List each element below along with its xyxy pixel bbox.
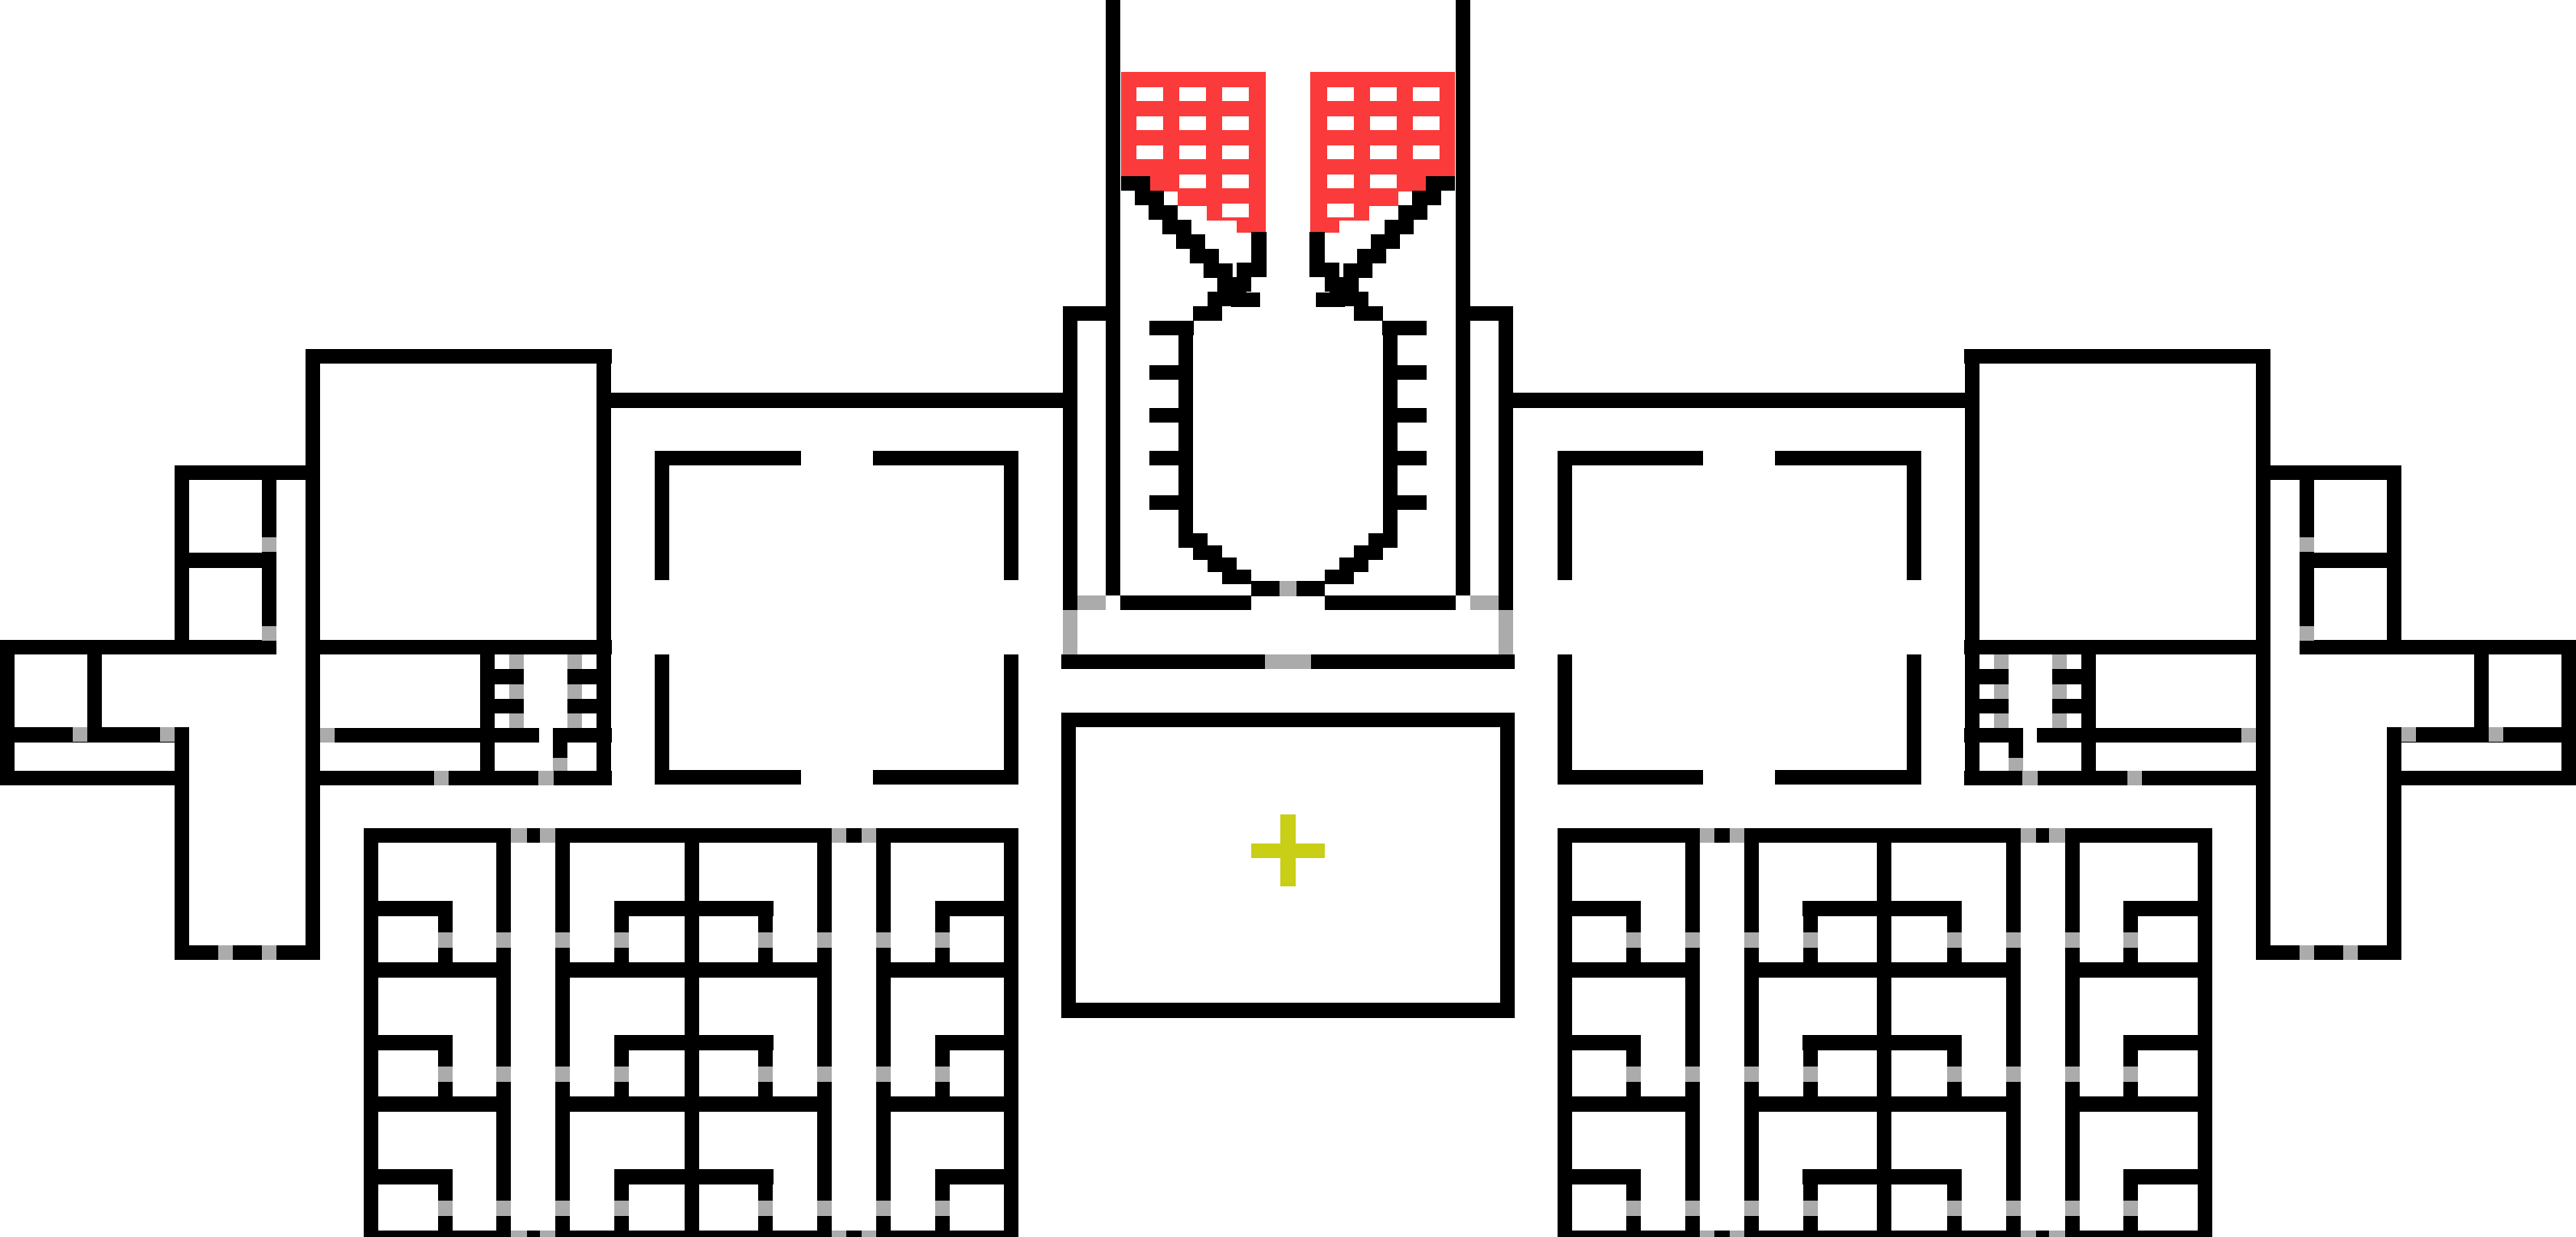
door-opening: [434, 771, 449, 785]
wall: [306, 349, 612, 364]
wall: [1891, 901, 1962, 916]
door-opening: [1685, 1201, 1700, 1216]
door-opening: [1685, 932, 1700, 948]
wall: [2037, 728, 2241, 743]
wall: [1572, 1035, 1641, 1050]
wall: [2300, 480, 2314, 537]
hatch-window: [1179, 87, 1206, 101]
wall: [2474, 654, 2489, 727]
door-opening: [2052, 684, 2067, 699]
door-opening: [555, 932, 570, 948]
hatch-window: [1136, 87, 1163, 101]
staircase-step: [1193, 306, 1222, 321]
wall: [1382, 321, 1427, 335]
wall: [1383, 335, 1398, 539]
door-opening: [832, 1231, 846, 1237]
staircase-step: [1135, 191, 1164, 205]
wall: [1063, 306, 1106, 321]
wall: [614, 901, 685, 916]
door-opening: [1063, 610, 1077, 654]
door-opening: [2300, 626, 2314, 641]
door-opening: [614, 932, 629, 948]
door-opening: [758, 1201, 773, 1216]
wall: [1891, 1096, 2006, 1112]
staircase-step: [1237, 263, 1266, 277]
wall: [1499, 306, 1513, 610]
door-opening: [817, 1201, 832, 1216]
wall: [555, 843, 570, 1231]
wall: [614, 1035, 685, 1050]
wall: [306, 640, 612, 654]
door-opening: [1744, 1067, 1759, 1082]
wall: [1004, 654, 1018, 770]
wall: [364, 828, 1018, 843]
door-opening: [862, 1231, 876, 1237]
door-opening: [2021, 1231, 2036, 1237]
door-opening: [509, 684, 524, 699]
wall: [175, 480, 189, 654]
door-opening: [2021, 828, 2036, 843]
wall: [189, 553, 276, 568]
wall: [1120, 595, 1251, 610]
wall: [2256, 945, 2401, 960]
wall: [1398, 495, 1427, 510]
door-opening: [2065, 1067, 2080, 1082]
medical-cross-bar: [1251, 844, 1325, 858]
door-opening: [935, 1067, 950, 1082]
staircase-step: [1149, 205, 1178, 220]
door-opening: [1282, 581, 1296, 596]
door-opening: [1803, 932, 1818, 948]
door-opening: [511, 1231, 527, 1237]
wall: [1907, 654, 1921, 770]
wall: [685, 843, 699, 1231]
staircase-step: [1325, 570, 1354, 584]
wall: [1149, 408, 1178, 423]
wall: [1891, 1169, 1962, 1184]
door-opening: [511, 828, 527, 843]
wall: [611, 393, 1063, 408]
wall: [1004, 828, 1018, 1237]
door-opening: [758, 1067, 773, 1082]
door-opening: [876, 1201, 891, 1216]
door-opening: [832, 828, 846, 843]
wall: [2123, 1169, 2198, 1184]
wall: [1513, 393, 1965, 408]
staircase-step: [1222, 277, 1251, 292]
door-opening: [935, 932, 950, 948]
door-opening: [935, 1201, 950, 1216]
door-opening: [218, 945, 233, 960]
wall: [699, 1035, 774, 1050]
wall: [2006, 843, 2021, 1231]
wall: [2123, 1035, 2198, 1050]
wall: [0, 640, 276, 654]
wall: [699, 1169, 774, 1184]
wall: [1558, 828, 2212, 843]
wall: [335, 728, 539, 743]
floor-plan-canvas: [0, 0, 2576, 1237]
door-opening: [553, 758, 567, 771]
staircase-step: [1426, 176, 1455, 191]
door-opening: [2065, 1201, 2080, 1216]
door-opening: [509, 654, 524, 669]
wall: [0, 771, 189, 785]
door-opening: [1994, 684, 2009, 699]
wall: [2256, 785, 2270, 960]
door-opening: [2065, 932, 2080, 948]
wall: [614, 1169, 685, 1184]
wall: [1775, 451, 1921, 465]
wall: [1398, 451, 1427, 465]
door-opening: [1803, 1067, 1818, 1082]
door-opening: [862, 828, 876, 843]
door-opening: [262, 945, 276, 960]
door-opening: [555, 1201, 570, 1216]
wall: [2081, 654, 2096, 785]
staircase-step: [1357, 249, 1386, 263]
door-opening: [1499, 610, 1513, 654]
door-opening: [1744, 1201, 1759, 1216]
wall: [1964, 771, 2256, 785]
wall: [1325, 595, 1456, 610]
wall: [1572, 962, 1685, 978]
hatch-window: [1413, 145, 1440, 159]
door-opening: [817, 932, 832, 948]
wall: [378, 1035, 453, 1050]
wall: [1178, 335, 1193, 539]
wall: [1877, 843, 1891, 1231]
hatch-window: [1413, 87, 1440, 101]
wall: [175, 465, 320, 480]
wall: [0, 654, 15, 785]
wall: [1558, 465, 1572, 580]
wall: [1558, 451, 1703, 465]
staircase-step: [1204, 263, 1233, 278]
wall: [306, 349, 320, 785]
restricted-block-step: [1310, 191, 1398, 206]
wall: [876, 843, 891, 1231]
wall: [378, 962, 496, 978]
door-opening: [2006, 1201, 2021, 1216]
wall: [1964, 640, 2270, 654]
wall: [1802, 1169, 1877, 1184]
wall: [2387, 771, 2576, 785]
wall: [553, 743, 567, 758]
door-opening: [509, 713, 524, 728]
wall: [378, 1169, 453, 1184]
door-opening: [614, 1067, 629, 1082]
wall: [1149, 365, 1178, 380]
wall: [1558, 828, 1572, 1237]
hatch-window: [1370, 116, 1397, 130]
door-opening: [320, 728, 335, 743]
staircase-step: [1222, 570, 1251, 584]
door-opening: [262, 537, 276, 552]
wall: [655, 451, 801, 465]
door-opening: [73, 727, 87, 742]
door-opening: [1947, 1201, 1962, 1216]
staircase-step: [1354, 306, 1383, 321]
door-opening: [2052, 654, 2067, 669]
wall: [1964, 349, 2270, 364]
wall: [1572, 1096, 1685, 1112]
hatch-window: [1179, 175, 1206, 188]
restricted-block-step: [1237, 221, 1266, 233]
door-opening: [1700, 1231, 1714, 1237]
staircase-step: [1343, 263, 1372, 278]
wall: [175, 945, 320, 960]
hatch-window: [1136, 145, 1163, 159]
wall: [655, 654, 669, 770]
staircase-step: [1162, 220, 1191, 234]
staircase-step: [1339, 292, 1368, 306]
wall: [378, 1096, 496, 1112]
door-opening: [2022, 771, 2038, 785]
wall: [1907, 465, 1921, 580]
wall: [1149, 451, 1178, 465]
door-opening: [876, 932, 891, 948]
wall: [655, 465, 669, 580]
wall: [567, 699, 597, 713]
wall: [655, 770, 801, 785]
wall: [87, 654, 102, 727]
wall: [2300, 640, 2576, 654]
wall: [891, 1096, 1004, 1112]
wall: [1572, 901, 1641, 916]
wall: [699, 962, 817, 978]
hatch-window: [1179, 116, 1206, 130]
wall: [2561, 654, 2576, 785]
wall: [1685, 843, 1700, 1231]
hatch-window: [1327, 204, 1354, 217]
wall: [1965, 349, 1979, 785]
wall: [480, 654, 495, 785]
wall: [699, 1096, 817, 1112]
wall: [2009, 743, 2023, 758]
door-opening: [160, 727, 175, 742]
hatch-window: [1222, 87, 1249, 101]
wall: [1500, 727, 1515, 1003]
wall: [2080, 1096, 2198, 1112]
wall: [1759, 1096, 1877, 1112]
wall: [935, 1169, 1004, 1184]
hatch-window: [1413, 116, 1440, 130]
wall: [1891, 962, 2006, 978]
hatch-window: [1370, 87, 1397, 101]
door-opening: [438, 1067, 453, 1082]
wall: [495, 699, 524, 713]
door-opening: [1626, 932, 1641, 948]
door-opening: [567, 654, 582, 669]
wall: [1061, 1003, 1515, 1018]
restricted-block-step: [1310, 221, 1339, 233]
door-opening: [2006, 932, 2021, 948]
door-opening: [2006, 1067, 2021, 1082]
door-opening: [555, 1067, 570, 1082]
door-opening: [2123, 1067, 2138, 1082]
wall: [1891, 1035, 1962, 1050]
door-opening: [2343, 945, 2358, 960]
door-opening: [817, 1067, 832, 1082]
wall: [320, 771, 612, 785]
staircase-step: [1371, 234, 1400, 249]
hatch-window: [1327, 145, 1354, 159]
door-opening: [1947, 932, 1962, 948]
door-opening: [2052, 713, 2067, 728]
wall: [1398, 408, 1427, 423]
hatch-window: [1370, 145, 1397, 159]
wall: [1149, 321, 1194, 335]
hatch-window: [1222, 204, 1249, 217]
wall: [1456, 0, 1470, 595]
door-opening: [1803, 1201, 1818, 1216]
wall: [1558, 654, 1572, 770]
door-opening: [438, 1201, 453, 1216]
door-opening: [2300, 945, 2314, 960]
door-opening: [438, 932, 453, 948]
door-opening: [2127, 771, 2142, 785]
hatch-window: [1327, 175, 1354, 188]
wall: [1572, 1169, 1641, 1184]
wall: [891, 962, 1004, 978]
door-opening: [1685, 1067, 1700, 1082]
staircase-step: [1190, 249, 1219, 263]
wall: [1004, 465, 1018, 580]
wall: [1149, 495, 1178, 510]
door-opening: [758, 932, 773, 948]
staircase-step: [1208, 292, 1237, 306]
door-opening: [1994, 654, 2009, 669]
wall: [2387, 785, 2401, 960]
wall: [1802, 1035, 1877, 1050]
door-opening: [1700, 828, 1714, 843]
wall: [378, 901, 453, 916]
door-opening: [538, 771, 554, 785]
wall: [1398, 365, 1427, 380]
door-opening: [540, 1231, 555, 1237]
door-opening: [1730, 1231, 1744, 1237]
wall: [2052, 669, 2081, 684]
door-opening: [1470, 595, 1499, 610]
door-opening: [2009, 758, 2023, 771]
staircase-step: [1310, 263, 1339, 277]
door-opening: [567, 713, 582, 728]
wall: [364, 1231, 1018, 1237]
wall: [567, 669, 597, 684]
door-opening: [496, 932, 511, 948]
wall: [597, 349, 611, 785]
wall: [817, 843, 832, 1231]
door-opening: [1626, 1067, 1641, 1082]
wall: [262, 480, 276, 537]
restricted-block-step: [1178, 191, 1266, 206]
wall: [1744, 843, 1759, 1231]
wall: [1979, 669, 2009, 684]
door-opening: [1267, 654, 1311, 669]
door-opening: [1994, 713, 2009, 728]
wall: [1558, 1231, 2212, 1237]
door-opening: [540, 828, 555, 843]
door-opening: [2300, 537, 2314, 552]
wall: [2256, 349, 2270, 785]
wall: [2256, 465, 2401, 480]
wall: [1106, 0, 1120, 595]
staircase-step: [1176, 234, 1205, 249]
wall: [2198, 828, 2212, 1237]
staircase-step: [1412, 191, 1441, 205]
hatch-window: [1179, 145, 1206, 159]
door-opening: [2241, 728, 2256, 743]
wall: [1775, 770, 1921, 785]
door-opening: [1077, 595, 1106, 610]
wall: [570, 962, 685, 978]
hatch-window: [1370, 175, 1397, 188]
wall: [2387, 480, 2401, 654]
wall: [873, 451, 1018, 465]
door-opening: [876, 1067, 891, 1082]
wall: [935, 901, 1004, 916]
hatch-window: [1222, 175, 1249, 188]
wall: [175, 785, 189, 960]
wall: [1470, 306, 1513, 321]
map-background: [0, 0, 2576, 1237]
staircase-step: [1121, 176, 1150, 191]
wall: [1558, 770, 1703, 785]
wall: [873, 770, 1018, 785]
door-opening: [1947, 1067, 1962, 1082]
door-opening: [614, 1201, 629, 1216]
hatch-window: [1222, 145, 1249, 159]
wall: [1979, 699, 2009, 713]
wall: [1802, 901, 1877, 916]
door-opening: [1730, 828, 1744, 843]
staircase-step: [1398, 205, 1427, 220]
wall: [2065, 843, 2080, 1231]
wall: [2123, 901, 2198, 916]
wall: [2052, 699, 2081, 713]
staircase-step: [1325, 277, 1354, 292]
staircase-step: [1385, 220, 1414, 234]
wall: [496, 843, 511, 1231]
wall: [935, 1035, 1004, 1050]
wall: [364, 828, 378, 1237]
floor-plan-map: [0, 0, 2576, 1237]
door-opening: [262, 626, 276, 641]
wall: [1759, 962, 1877, 978]
door-opening: [2401, 727, 2416, 742]
door-opening: [2489, 727, 2503, 742]
hatch-window: [1222, 116, 1249, 130]
door-opening: [2123, 1201, 2138, 1216]
door-opening: [496, 1201, 511, 1216]
door-opening: [567, 684, 582, 699]
door-opening: [2049, 1231, 2065, 1237]
door-opening: [2049, 828, 2065, 843]
door-opening: [1626, 1201, 1641, 1216]
hatch-window: [1327, 87, 1354, 101]
wall: [495, 669, 524, 684]
wall: [570, 1096, 685, 1112]
hatch-window: [1327, 116, 1354, 130]
wall: [306, 785, 320, 960]
wall: [1061, 713, 1515, 727]
wall: [2080, 962, 2198, 978]
wall: [1063, 306, 1077, 610]
wall: [2300, 553, 2387, 568]
door-opening: [2123, 932, 2138, 948]
hatch-window: [1136, 116, 1163, 130]
